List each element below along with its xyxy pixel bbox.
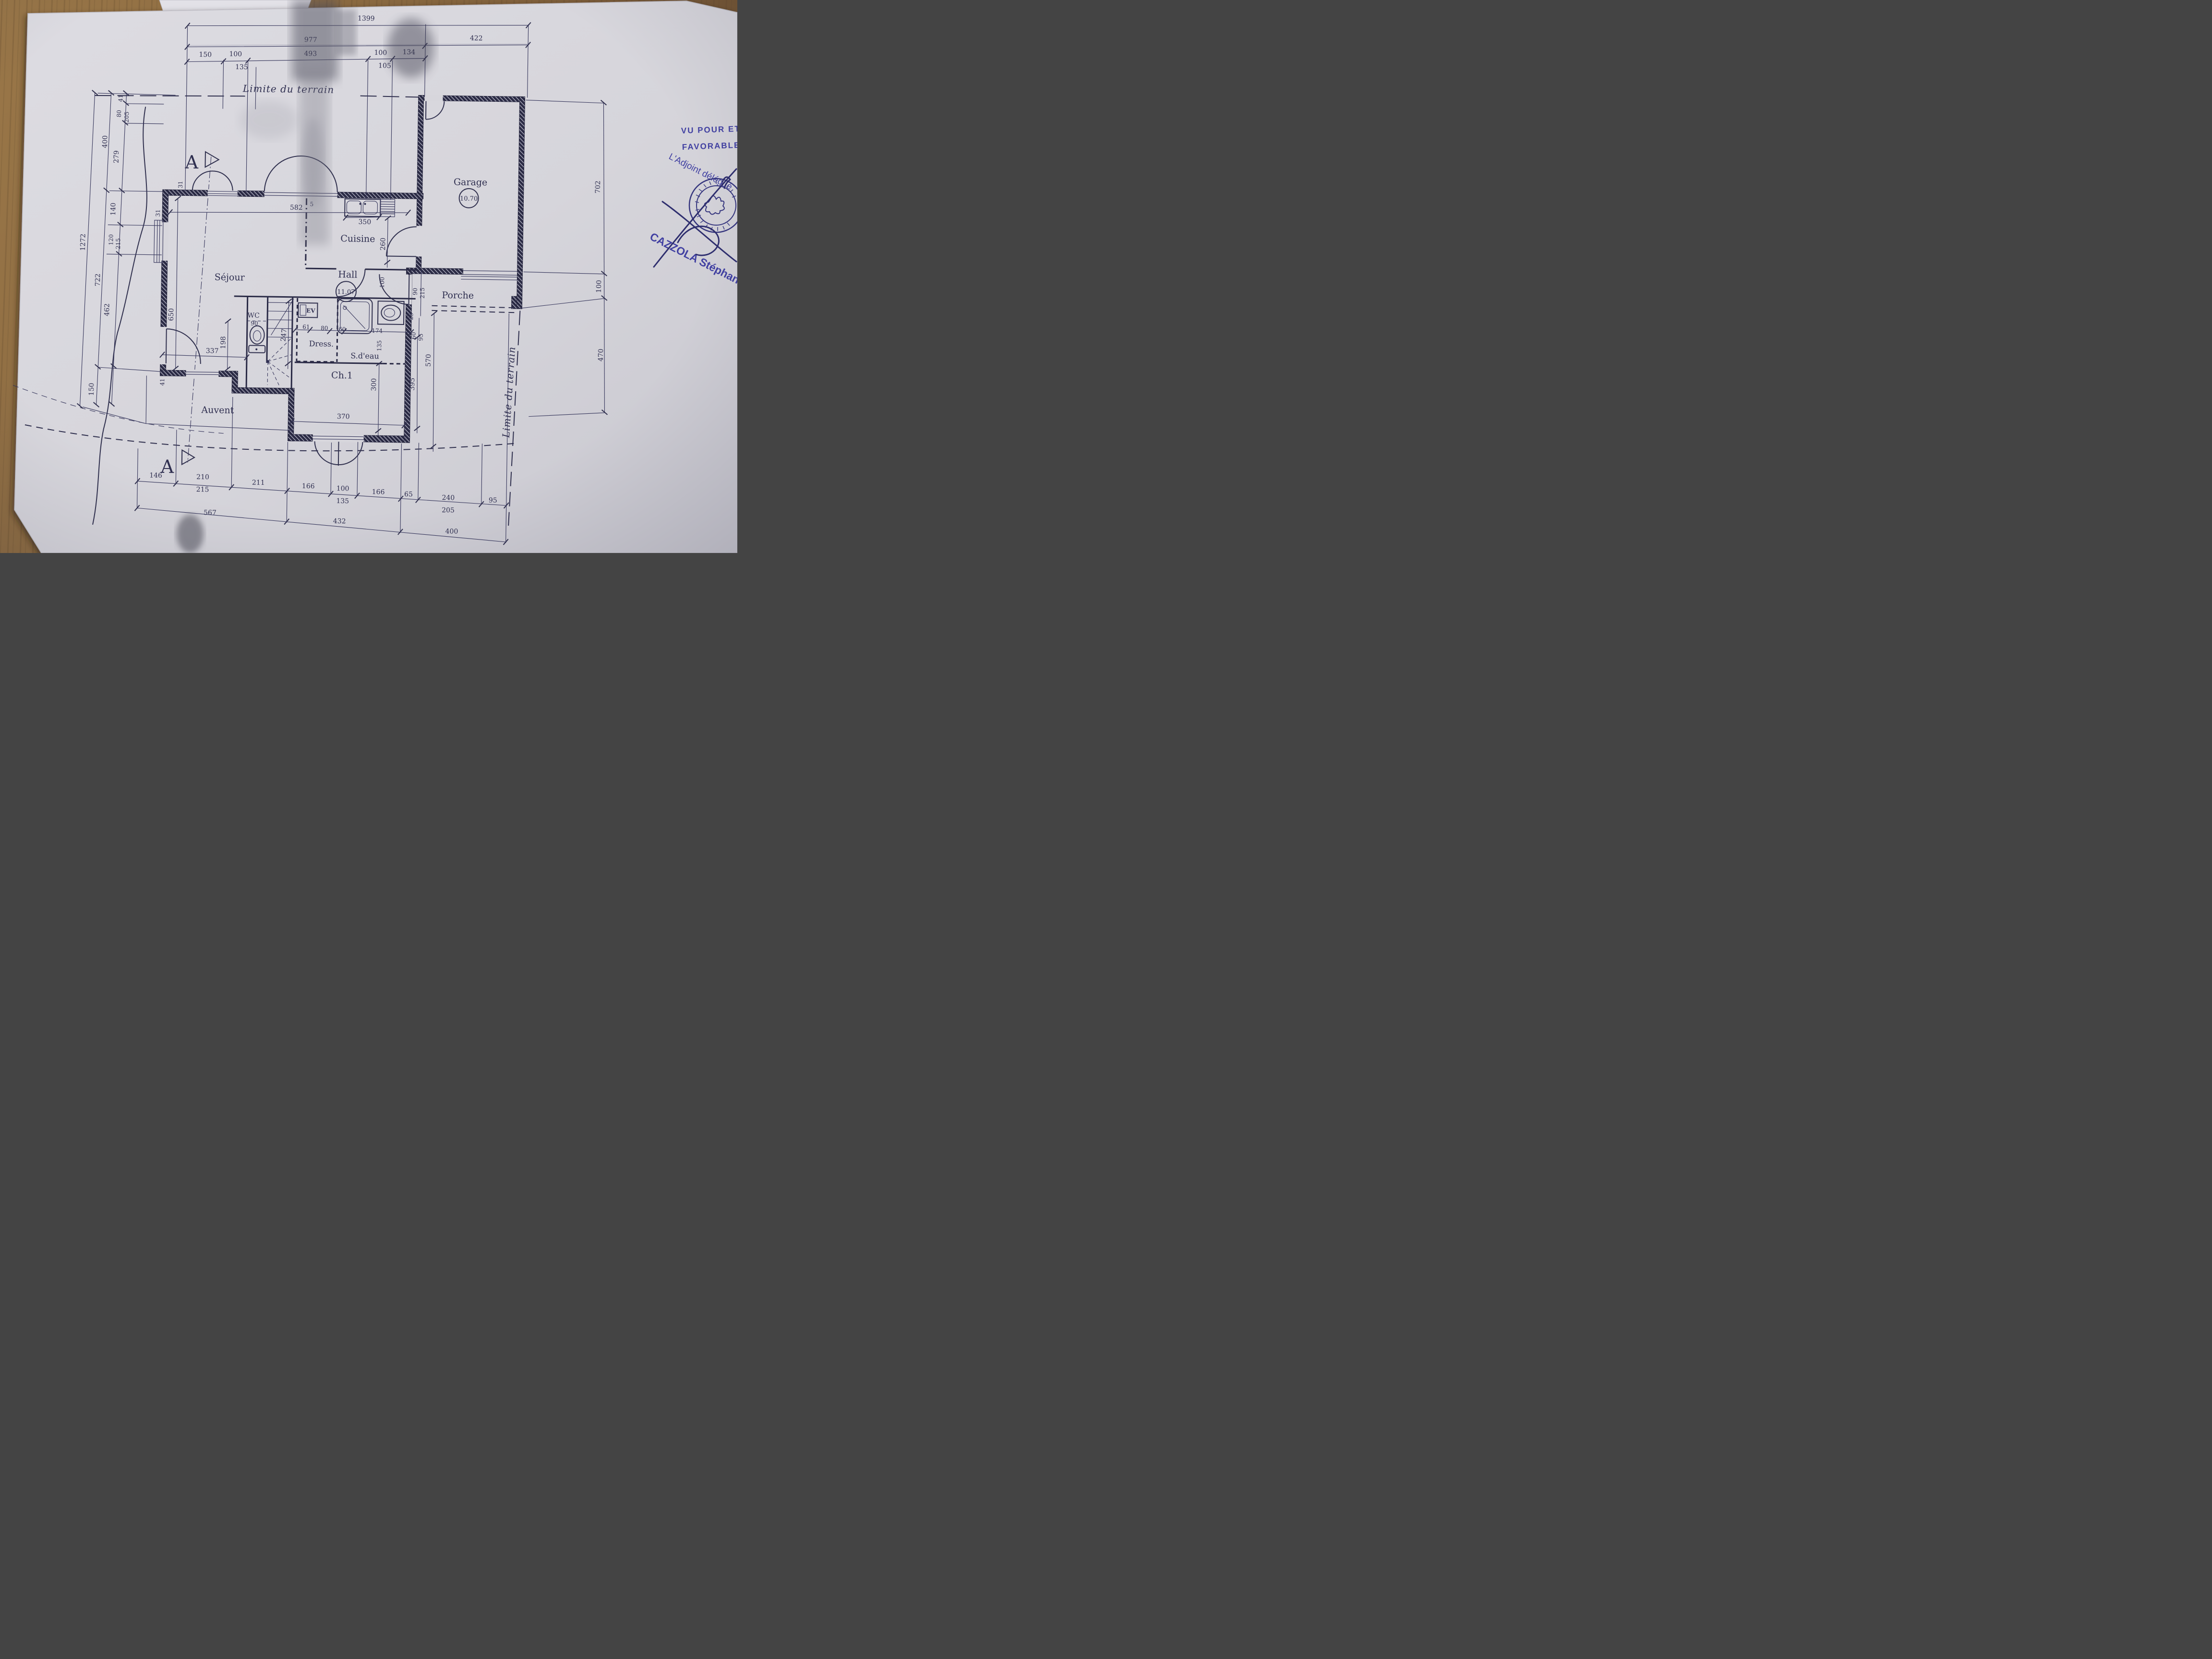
photo-of-floor-plan: 1399 977 422 150 100 135 493 100 105 134… (0, 0, 737, 553)
floor-plan-photo-svg: 1399 977 422 150 100 135 493 100 105 134… (0, 0, 737, 553)
photo-vignette (0, 0, 737, 553)
